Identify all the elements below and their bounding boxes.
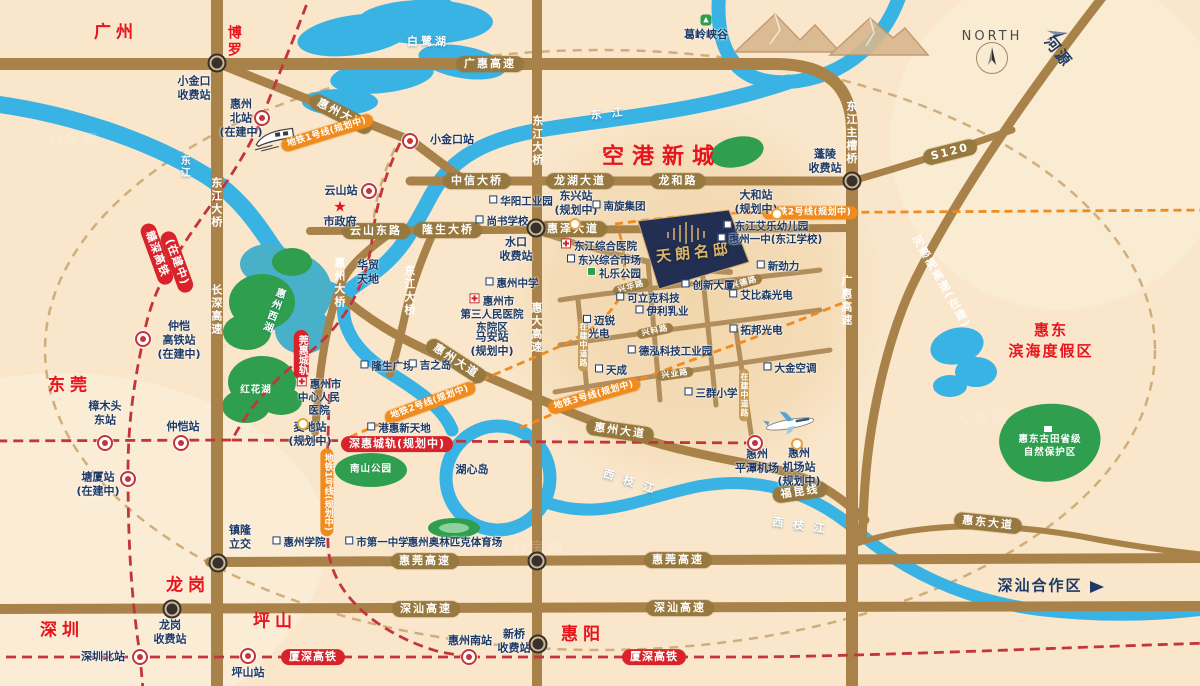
xinqiao-toll-junction-icon: [531, 637, 546, 652]
longgang-toll-junction-icon: [165, 602, 180, 617]
gutian-reserve-building-icon: [1043, 425, 1053, 433]
pingshan-station-icon: [240, 648, 256, 664]
huizhou-south-station-icon: [461, 649, 477, 665]
zhenlong-junction-icon: [211, 556, 226, 571]
gutian-reserve-shape: [999, 404, 1100, 482]
airport-new-town-glow: [495, 105, 885, 495]
mountains-icon: [735, 14, 928, 55]
bailu-lake-shape: [295, 0, 508, 115]
maidi-stop-icon: [297, 418, 309, 430]
location-map: 广州博罗东莞深圳龙岗坪山惠阳空港新城惠东 滨海度假区深汕合作区河源NORTH天朗…: [0, 0, 1200, 686]
shenzhen-north-station-icon: [132, 649, 148, 665]
zhongkai-hsr-station-icon: [135, 331, 151, 347]
huxin-island-land: [458, 438, 538, 518]
xiaojinkou-station-icon: [402, 133, 418, 149]
xiaojinkou-toll-junction-icon: [210, 56, 225, 71]
airport-stop-icon: [791, 438, 803, 450]
huidong-reservoir-shape: [926, 322, 997, 397]
dongxing-stop-icon: [569, 218, 581, 230]
huizhou-north-station-icon: [254, 110, 270, 126]
yunshan-station-icon: [361, 183, 377, 199]
tangxia-station-icon: [120, 471, 136, 487]
light-wash-bottom-left: [0, 373, 327, 686]
shenshan-zone-arrow-icon: [1090, 581, 1104, 593]
west-lake-shape: [223, 244, 332, 354]
honghua-lake-shape: [222, 356, 302, 423]
zhongkai-station-icon: [173, 435, 189, 451]
pingtan-airport-station-icon: [747, 435, 763, 451]
map-artwork: [0, 0, 1200, 686]
pengling-toll-junction-icon: [845, 174, 860, 189]
zhangmutou-east-station-icon: [97, 435, 113, 451]
compass-icon: [976, 42, 1008, 74]
olympic-stadium-field: [439, 523, 469, 533]
geling-canyon-tree-icon: ▲: [701, 15, 712, 26]
shuikou-junction-icon: [529, 221, 544, 236]
dahe-stop-icon: [771, 208, 783, 220]
nanshan-park-shape: [335, 453, 407, 487]
huiwan-junction-icon: [530, 554, 545, 569]
